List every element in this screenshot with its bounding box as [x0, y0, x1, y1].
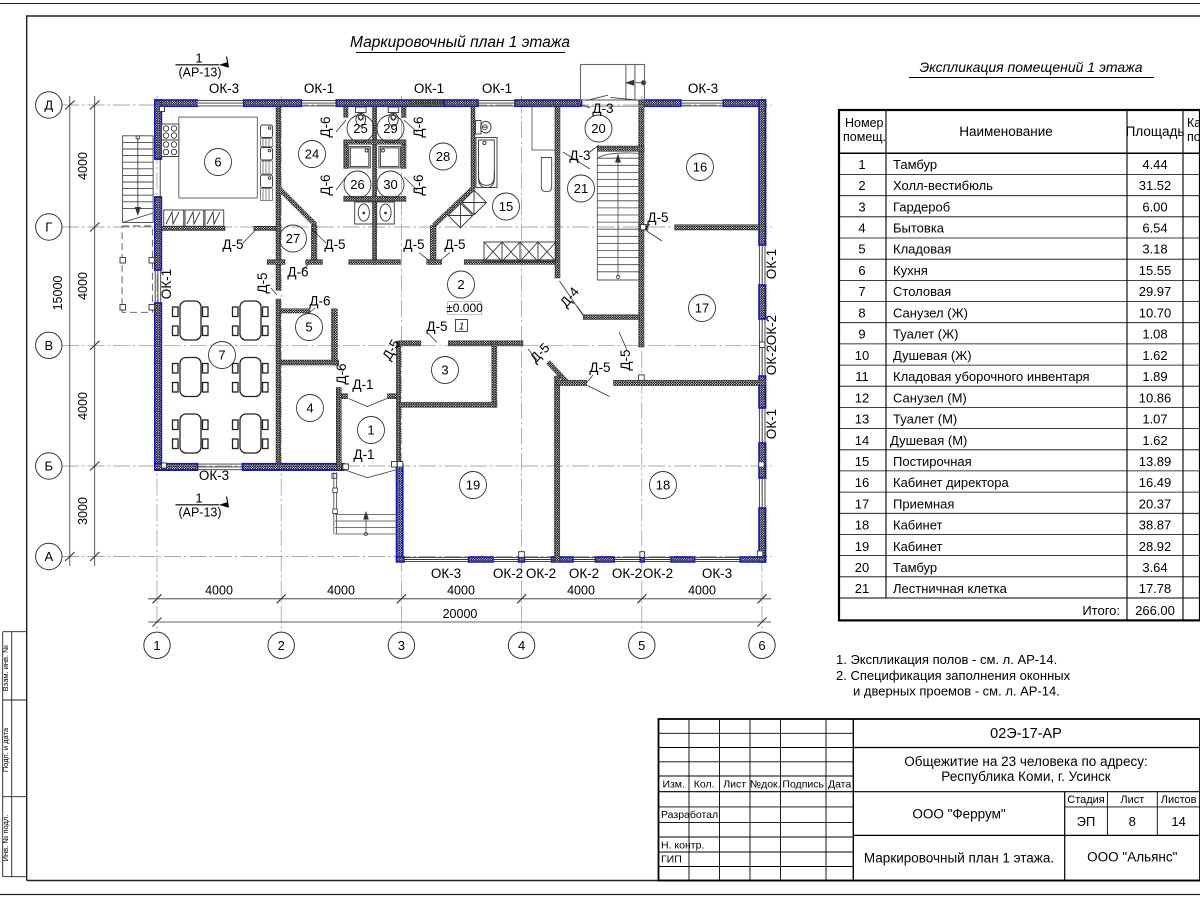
svg-text:Экспликация помещений 1 этажа: Экспликация помещений 1 этажа: [919, 59, 1142, 75]
svg-text:Г: Г: [45, 220, 52, 235]
svg-text:10.86: 10.86: [1139, 391, 1172, 406]
svg-text:12: 12: [855, 391, 869, 406]
svg-text:№док.: №док.: [750, 779, 781, 791]
svg-text:Приемная: Приемная: [893, 497, 954, 512]
svg-text:ООО "Альянс": ООО "Альянс": [1087, 850, 1177, 865]
svg-text:20000: 20000: [443, 607, 478, 621]
svg-text:ОК-1: ОК-1: [414, 81, 444, 96]
svg-text:ОК-1: ОК-1: [159, 269, 174, 299]
svg-text:Д-6: Д-6: [334, 363, 349, 384]
svg-text:ОК-2: ОК-2: [764, 315, 779, 345]
svg-text:02Э-17-АР: 02Э-17-АР: [990, 726, 1062, 742]
svg-text:Д-1: Д-1: [352, 377, 373, 392]
svg-text:2. Спецификация заполнения око: 2. Спецификация заполнения оконных: [836, 668, 1071, 683]
svg-text:3000: 3000: [76, 497, 90, 525]
svg-text:1: 1: [195, 491, 202, 506]
svg-text:Д-3: Д-3: [592, 101, 613, 116]
svg-text:28: 28: [436, 149, 450, 164]
svg-text:Д-5: Д-5: [647, 210, 668, 225]
svg-text:Маркировочный план 1 этажа: Маркировочный план 1 этажа: [350, 34, 570, 51]
svg-text:Лист: Лист: [1120, 794, 1144, 806]
svg-text:Кабинет: Кабинет: [893, 539, 942, 554]
svg-text:4000: 4000: [447, 584, 475, 598]
svg-text:Разработал: Разработал: [661, 809, 718, 821]
svg-text:Гардероб: Гардероб: [893, 200, 950, 215]
svg-text:Кладовая: Кладовая: [893, 242, 951, 257]
svg-text:15: 15: [855, 454, 869, 469]
svg-text:13.89: 13.89: [1139, 454, 1172, 469]
svg-text:ОК-2: ОК-2: [493, 566, 523, 581]
svg-text:21: 21: [574, 181, 588, 196]
svg-text:Взам. инв. №: Взам. инв. №: [1, 645, 10, 691]
svg-text:ОК-3: ОК-3: [688, 81, 718, 96]
svg-text:Д-6: Д-6: [411, 116, 426, 137]
svg-text:1: 1: [195, 51, 202, 66]
svg-text:Туалет (М): Туалет (М): [893, 412, 957, 427]
svg-text:Тамбур: Тамбур: [893, 157, 937, 172]
svg-text:Подп. и дата: Подп. и дата: [1, 727, 10, 772]
svg-text:ОК-2: ОК-2: [764, 345, 779, 375]
svg-text:1.62: 1.62: [1142, 433, 1167, 448]
svg-text:Постирочная: Постирочная: [893, 454, 972, 469]
svg-text:4: 4: [858, 221, 865, 236]
svg-text:Санузел (Ж): Санузел (Ж): [893, 306, 968, 321]
svg-text:Кабинет директора: Кабинет директора: [893, 475, 1009, 490]
svg-text:6: 6: [214, 155, 221, 170]
svg-text:Д-5: Д-5: [618, 349, 633, 370]
svg-text:ОК-2: ОК-2: [643, 566, 673, 581]
svg-text:1.08: 1.08: [1142, 327, 1167, 342]
svg-text:ОК-3: ОК-3: [431, 566, 461, 581]
svg-text:266.00: 266.00: [1135, 603, 1175, 618]
svg-text:24: 24: [305, 147, 319, 162]
svg-text:11: 11: [855, 369, 869, 384]
svg-text:19: 19: [466, 478, 480, 493]
svg-text:Кухня: Кухня: [893, 263, 928, 278]
svg-text:Кабинет: Кабинет: [893, 518, 942, 533]
svg-text:ООО "Феррум": ООО "Феррум": [912, 807, 1006, 822]
svg-text:16.49: 16.49: [1139, 475, 1172, 490]
svg-text:Д-6: Д-6: [318, 174, 333, 195]
svg-text:13: 13: [855, 412, 869, 427]
svg-text:20.37: 20.37: [1139, 497, 1172, 512]
svg-text:1: 1: [459, 321, 465, 332]
svg-text:Номер: Номер: [845, 116, 884, 130]
svg-text:1.07: 1.07: [1142, 412, 1167, 427]
svg-text:4000: 4000: [567, 584, 595, 598]
svg-text:30: 30: [383, 177, 397, 192]
svg-text:и дверных проемов - см. л. АР-: и дверных проемов - см. л. АР-14.: [853, 684, 1060, 699]
svg-text:3: 3: [398, 638, 405, 653]
svg-text:Площадь: Площадь: [1126, 124, 1185, 139]
svg-text:4.44: 4.44: [1142, 157, 1167, 172]
svg-text:4: 4: [518, 638, 525, 653]
svg-text:(АР-13): (АР-13): [178, 66, 221, 80]
svg-text:ОК-1: ОК-1: [764, 249, 779, 279]
svg-text:поме: поме: [1187, 130, 1200, 144]
svg-text:31.52: 31.52: [1139, 178, 1172, 193]
svg-text:Маркировочный план 1 этажа.: Маркировочный план 1 этажа.: [864, 851, 1054, 866]
svg-text:3.18: 3.18: [1142, 242, 1167, 257]
svg-text:Д-6: Д-6: [287, 265, 308, 280]
svg-text:15: 15: [499, 199, 513, 214]
svg-text:Санузел (М): Санузел (М): [893, 391, 967, 406]
svg-text:Кате: Кате: [1187, 116, 1200, 130]
svg-text:Лестничная клетка: Лестничная клетка: [893, 581, 1008, 596]
svg-text:Д: Д: [44, 98, 53, 113]
svg-text:Туалет (Ж): Туалет (Ж): [893, 327, 958, 342]
svg-text:Кол.: Кол.: [694, 779, 715, 791]
svg-text:Столовая: Столовая: [893, 284, 951, 299]
svg-text:Д-5: Д-5: [255, 272, 270, 293]
svg-text:Д-5: Д-5: [324, 237, 345, 252]
svg-text:Общежитие на 23 человека по ад: Общежитие на 23 человека по адресу:: [904, 754, 1147, 769]
svg-text:2: 2: [457, 277, 464, 292]
svg-text:4000: 4000: [205, 584, 233, 598]
svg-text:Д-3: Д-3: [569, 148, 590, 163]
svg-text:Республика Коми, г. Усинск: Республика Коми, г. Усинск: [941, 769, 1111, 784]
svg-text:Н. контр.: Н. контр.: [661, 840, 704, 852]
svg-text:1: 1: [858, 157, 865, 172]
svg-text:8: 8: [1129, 814, 1136, 829]
svg-text:29: 29: [383, 121, 397, 136]
svg-text:28.92: 28.92: [1139, 539, 1172, 554]
svg-text:20: 20: [855, 560, 869, 575]
svg-text:ОК-2: ОК-2: [569, 566, 599, 581]
svg-text:Бытовка: Бытовка: [893, 221, 945, 236]
svg-text:1: 1: [153, 638, 160, 653]
svg-text:Холл-вестибюль: Холл-вестибюль: [893, 178, 993, 193]
svg-text:9: 9: [858, 327, 865, 342]
svg-text:ОК-2: ОК-2: [612, 566, 642, 581]
svg-text:В: В: [44, 338, 53, 353]
svg-text:Листов: Листов: [1161, 794, 1197, 806]
svg-text:ОК-1: ОК-1: [482, 81, 512, 96]
svg-text:6: 6: [758, 638, 765, 653]
svg-text:8: 8: [858, 306, 865, 321]
svg-text:Д-5: Д-5: [222, 237, 243, 252]
svg-text:5: 5: [638, 638, 645, 653]
svg-text:15.55: 15.55: [1139, 263, 1172, 278]
svg-text:29.97: 29.97: [1139, 284, 1172, 299]
svg-text:1: 1: [367, 423, 374, 438]
svg-text:Дата: Дата: [828, 779, 851, 791]
svg-text:Д-6: Д-6: [309, 294, 330, 309]
svg-text:ОК-1: ОК-1: [304, 81, 334, 96]
svg-text:ОК-3: ОК-3: [702, 566, 732, 581]
svg-text:3: 3: [441, 363, 448, 378]
svg-text:Тамбур: Тамбур: [893, 560, 937, 575]
svg-text:14: 14: [855, 433, 869, 448]
svg-text:3.64: 3.64: [1142, 560, 1167, 575]
svg-text:38.87: 38.87: [1139, 518, 1172, 533]
svg-text:27: 27: [286, 231, 300, 246]
svg-text:4: 4: [306, 401, 313, 416]
svg-text:Д-6: Д-6: [411, 174, 426, 195]
svg-text:Д-5: Д-5: [426, 319, 447, 334]
svg-text:15000: 15000: [51, 276, 65, 311]
svg-text:4000: 4000: [76, 392, 90, 420]
svg-text:6.54: 6.54: [1142, 221, 1167, 236]
svg-text:Лист: Лист: [723, 779, 746, 791]
svg-text:Душевая (Ж): Душевая (Ж): [893, 348, 972, 363]
svg-text:Итого:: Итого:: [1082, 603, 1120, 618]
svg-text:Инв. № подл.: Инв. № подл.: [1, 815, 10, 862]
svg-text:16: 16: [855, 475, 869, 490]
svg-text:4000: 4000: [688, 584, 716, 598]
svg-text:18: 18: [656, 478, 670, 493]
svg-text:ЭП: ЭП: [1077, 814, 1096, 829]
svg-text:ОК-3: ОК-3: [209, 81, 239, 96]
svg-text:4000: 4000: [327, 584, 355, 598]
svg-text:17: 17: [855, 497, 869, 512]
svg-text:1. Экспликация полов - см. л.: 1. Экспликация полов - см. л. АР-14.: [836, 652, 1057, 667]
svg-text:Кладовая уборочного инвентаря: Кладовая уборочного инвентаря: [893, 369, 1090, 384]
svg-text:Душевая (М): Душевая (М): [890, 433, 967, 448]
svg-text:Д-5: Д-5: [403, 237, 424, 252]
svg-text:помещ.: помещ.: [843, 130, 886, 144]
svg-text:2: 2: [858, 178, 865, 193]
svg-text:ОК-1: ОК-1: [764, 409, 779, 439]
svg-text:2: 2: [278, 638, 285, 653]
svg-text:26: 26: [350, 177, 364, 192]
svg-text:14: 14: [1171, 814, 1185, 829]
svg-text:ГИП: ГИП: [661, 854, 682, 866]
svg-text:ОК-2: ОК-2: [526, 566, 556, 581]
svg-text:(АР-13): (АР-13): [178, 506, 221, 520]
svg-text:Д-6: Д-6: [318, 116, 333, 137]
svg-text:21: 21: [855, 581, 869, 596]
svg-text:А: А: [44, 549, 53, 564]
svg-text:Д-5: Д-5: [444, 237, 465, 252]
svg-text:18: 18: [855, 518, 869, 533]
svg-text:7: 7: [858, 284, 865, 299]
svg-text:±0.000: ±0.000: [446, 301, 483, 315]
svg-text:Стадия: Стадия: [1067, 794, 1105, 806]
svg-text:20: 20: [591, 121, 605, 136]
svg-text:1.89: 1.89: [1142, 369, 1167, 384]
svg-text:7: 7: [218, 348, 225, 363]
svg-text:Д-5: Д-5: [589, 360, 610, 375]
svg-text:Подпись: Подпись: [782, 779, 824, 791]
svg-text:Наименование: Наименование: [959, 124, 1053, 139]
svg-text:16: 16: [693, 160, 707, 175]
svg-text:25: 25: [353, 121, 367, 136]
svg-text:Б: Б: [45, 459, 54, 474]
svg-text:5: 5: [305, 320, 312, 335]
svg-text:6: 6: [858, 263, 865, 278]
svg-text:10: 10: [855, 348, 869, 363]
svg-text:6.00: 6.00: [1142, 200, 1167, 215]
svg-text:Д-1: Д-1: [353, 447, 374, 462]
svg-text:5: 5: [858, 242, 865, 257]
svg-text:10.70: 10.70: [1139, 306, 1172, 321]
svg-text:1.62: 1.62: [1142, 348, 1167, 363]
svg-text:4000: 4000: [76, 152, 90, 180]
svg-text:17.78: 17.78: [1139, 581, 1172, 596]
svg-text:19: 19: [855, 539, 869, 554]
svg-text:3: 3: [858, 200, 865, 215]
svg-text:Изм.: Изм.: [662, 779, 685, 791]
svg-text:ОК-3: ОК-3: [199, 468, 229, 483]
svg-text:4000: 4000: [76, 272, 90, 300]
svg-text:17: 17: [695, 301, 709, 316]
